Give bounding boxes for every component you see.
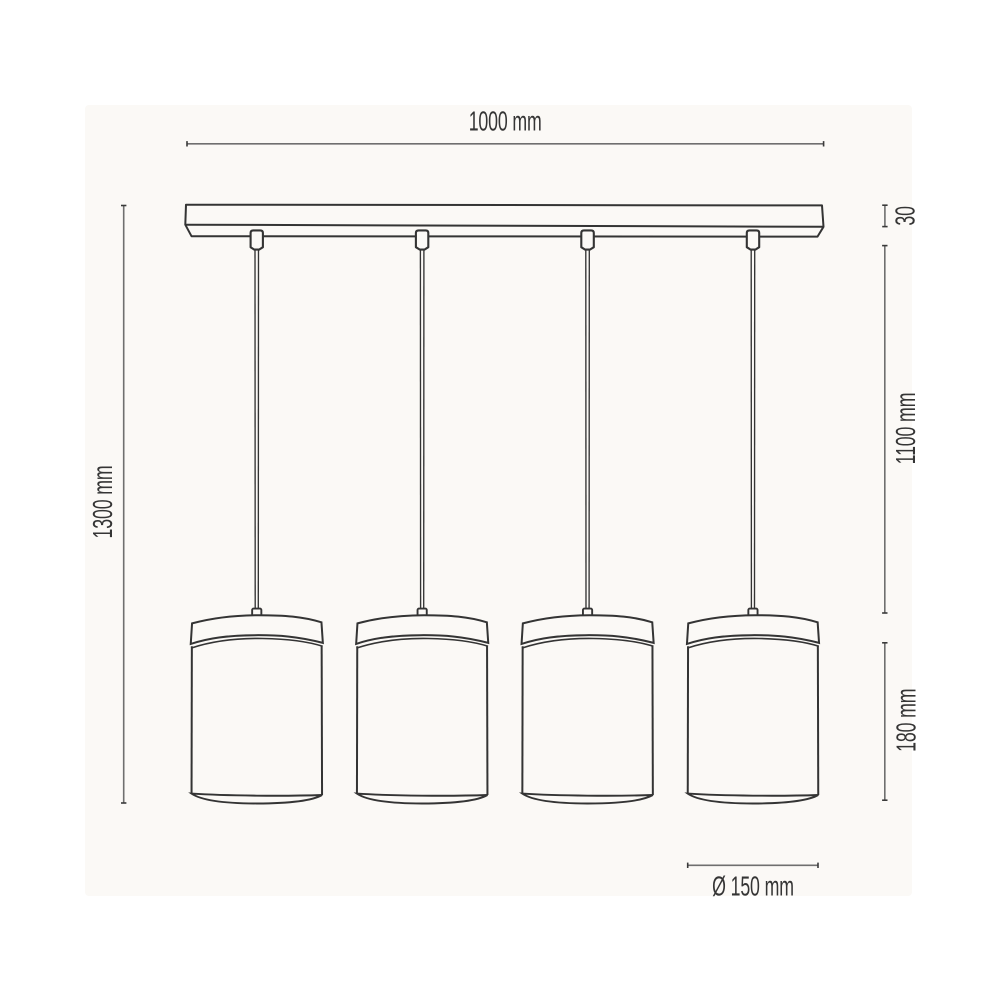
svg-text:30: 30 xyxy=(890,206,921,225)
svg-text:Ø 150 mm: Ø 150 mm xyxy=(712,870,794,901)
svg-text:180 mm: 180 mm xyxy=(891,689,922,752)
svg-text:1100 mm: 1100 mm xyxy=(890,393,921,465)
svg-text:1000 mm: 1000 mm xyxy=(469,105,542,136)
svg-text:1300 mm: 1300 mm xyxy=(87,466,118,539)
